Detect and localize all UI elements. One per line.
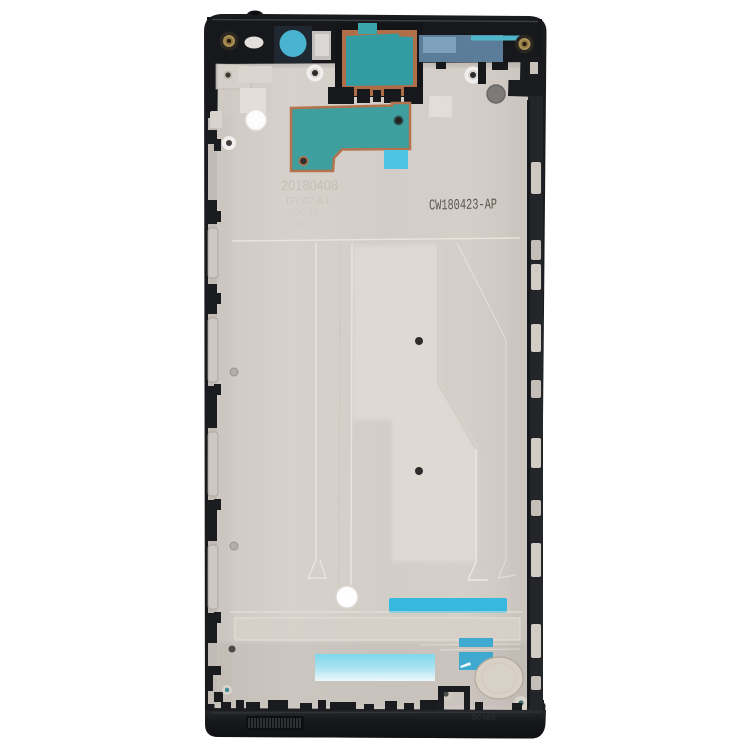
svg-text:A5C42: A5C42 [288,207,319,218]
svg-text:CW180423-AP: CW180423-AP [429,196,497,214]
svg-text:DY42 A1: DY42 A1 [286,196,330,207]
svg-text:LXEC: LXEC [290,218,316,229]
svg-text:DC486: DC486 [472,714,496,723]
svg-text:20180408: 20180408 [281,178,338,193]
